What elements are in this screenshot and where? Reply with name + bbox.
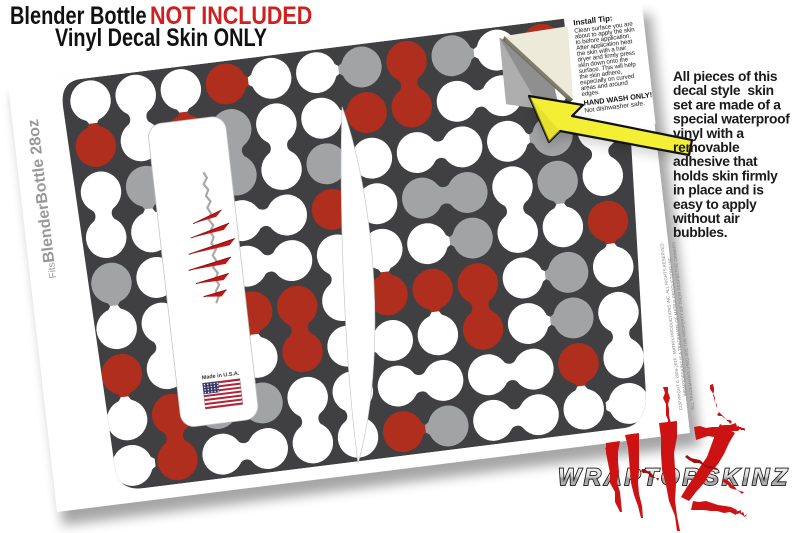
svg-text:All pieces of this: All pieces of this <box>673 69 778 84</box>
svg-text:holds skin firmly: holds skin firmly <box>673 168 778 183</box>
svg-text:decal style skin: decal style skin <box>673 83 774 98</box>
svg-text:bubbles.: bubbles. <box>673 225 727 240</box>
svg-text:set are made of a: set are made of a <box>673 97 781 112</box>
svg-text:removable: removable <box>673 140 740 155</box>
svg-text:in place and is: in place and is <box>673 183 764 198</box>
svg-text:vinyl with a: vinyl with a <box>673 126 744 141</box>
svg-text:without air: without air <box>672 211 740 226</box>
svg-text:Vinyl Decal Skin ONLY: Vinyl Decal Skin ONLY <box>55 24 267 52</box>
svg-text:adhesive that: adhesive that <box>673 154 758 169</box>
svg-text:Fits: Fits <box>46 262 59 279</box>
svg-text:special waterproof: special waterproof <box>673 112 790 127</box>
svg-text:easy to apply: easy to apply <box>673 197 757 212</box>
